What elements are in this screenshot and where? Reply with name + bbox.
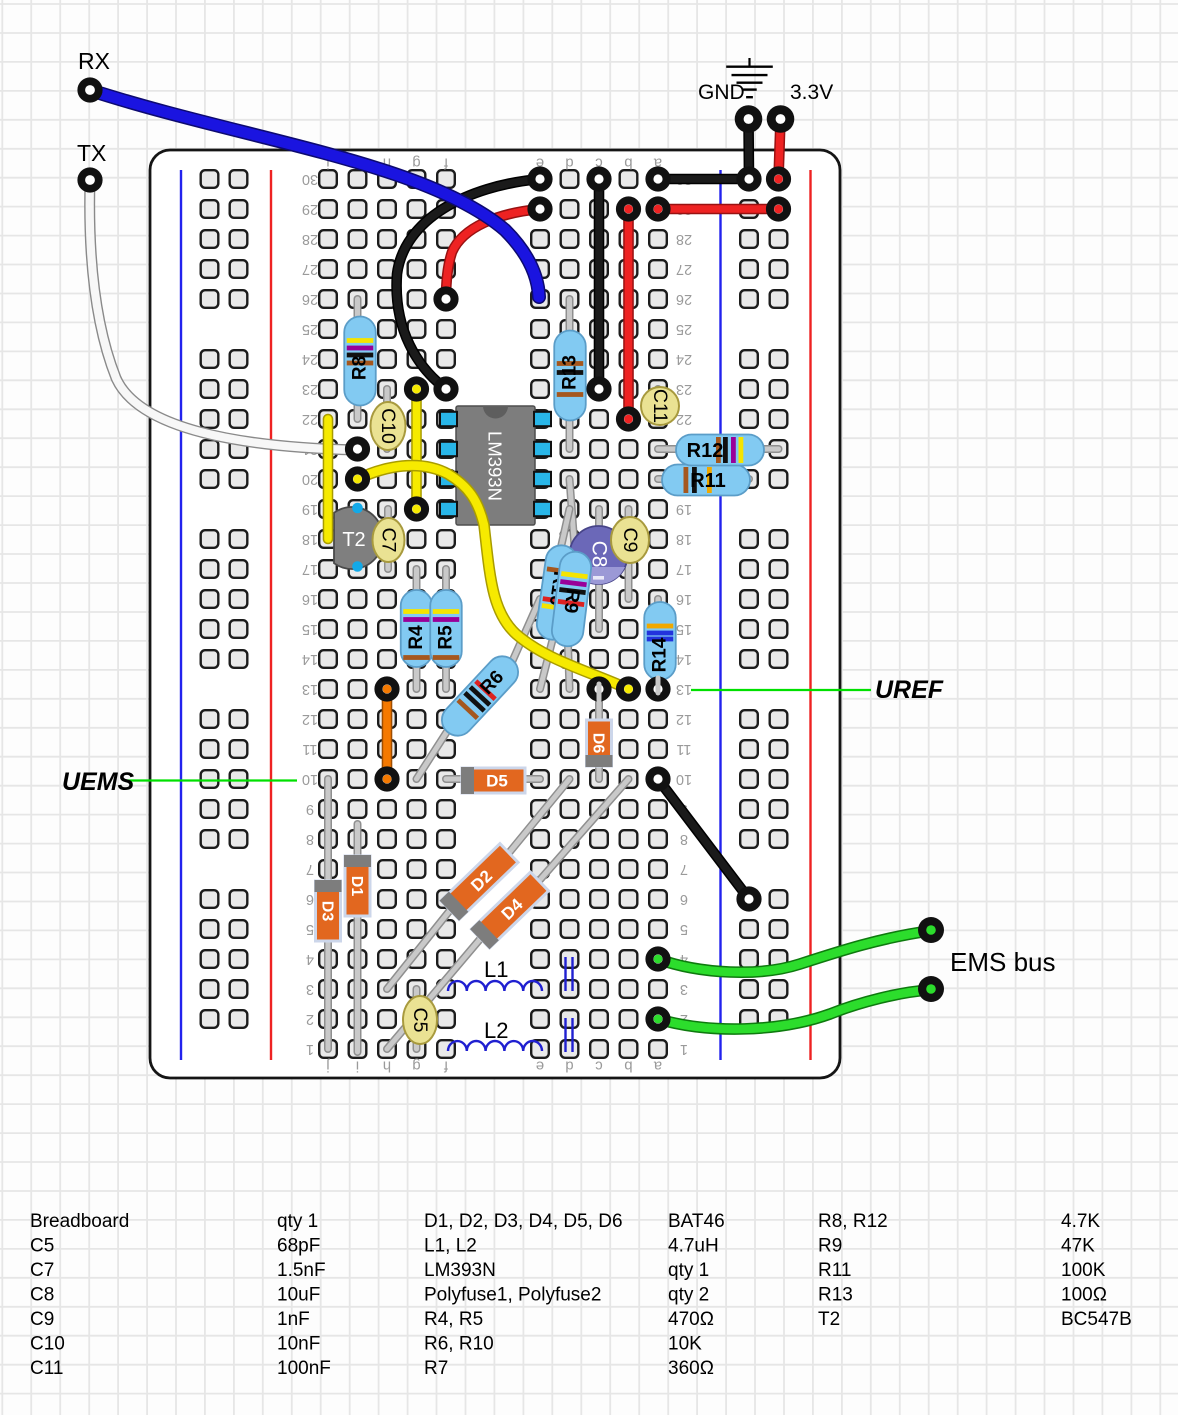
- svg-text:22: 22: [302, 411, 318, 427]
- svg-text:R11: R11: [690, 470, 726, 492]
- svg-text:L1: L1: [484, 957, 508, 982]
- svg-text:L1, L2: L1, L2: [424, 1236, 477, 1257]
- svg-text:26: 26: [302, 291, 318, 307]
- svg-text:R6, R10: R6, R10: [424, 1334, 494, 1355]
- svg-text:13: 13: [676, 681, 692, 697]
- svg-text:10: 10: [302, 771, 318, 787]
- svg-text:D6: D6: [590, 733, 607, 754]
- svg-text:10uF: 10uF: [277, 1285, 320, 1306]
- svg-text:3: 3: [306, 981, 314, 997]
- svg-text:360Ω: 360Ω: [668, 1358, 714, 1379]
- svg-text:68pF: 68pF: [277, 1236, 320, 1257]
- svg-text:12: 12: [676, 711, 692, 727]
- svg-text:100K: 100K: [1061, 1260, 1106, 1281]
- svg-text:7: 7: [680, 861, 688, 877]
- svg-text:g: g: [412, 155, 420, 172]
- svg-text:23: 23: [676, 381, 692, 397]
- svg-text:10: 10: [676, 771, 692, 787]
- svg-text:C5: C5: [30, 1236, 54, 1257]
- svg-text:C7: C7: [30, 1260, 54, 1281]
- svg-text:D1: D1: [348, 876, 365, 897]
- svg-text:15: 15: [676, 621, 692, 637]
- svg-text:BC547B: BC547B: [1061, 1309, 1132, 1330]
- svg-text:LM393N: LM393N: [485, 431, 506, 501]
- svg-text:17: 17: [302, 561, 318, 577]
- svg-text:R14: R14: [650, 637, 671, 672]
- svg-text:23: 23: [302, 381, 318, 397]
- svg-text:C11: C11: [649, 389, 671, 423]
- svg-text:5: 5: [306, 921, 314, 937]
- svg-text:10nF: 10nF: [277, 1334, 320, 1355]
- svg-text:9: 9: [306, 801, 314, 817]
- svg-text:100Ω: 100Ω: [1061, 1285, 1107, 1306]
- svg-text:i: i: [356, 1058, 359, 1075]
- svg-text:qty 1: qty 1: [277, 1211, 318, 1232]
- svg-text:2: 2: [306, 1011, 314, 1027]
- svg-text:R13: R13: [560, 355, 581, 390]
- svg-text:8: 8: [306, 831, 314, 847]
- svg-text:15: 15: [302, 621, 318, 637]
- svg-text:20: 20: [302, 471, 318, 487]
- svg-text:29: 29: [302, 201, 318, 217]
- svg-text:18: 18: [676, 531, 692, 547]
- svg-text:BAT46: BAT46: [668, 1211, 725, 1232]
- svg-text:R9: R9: [559, 588, 583, 615]
- svg-text:a: a: [653, 1058, 662, 1075]
- svg-text:UEMS: UEMS: [62, 768, 135, 796]
- svg-text:RX: RX: [78, 48, 110, 74]
- svg-text:qty 1: qty 1: [668, 1260, 709, 1281]
- svg-text:28: 28: [302, 231, 318, 247]
- svg-text:C10: C10: [30, 1334, 65, 1355]
- svg-text:30: 30: [302, 171, 318, 187]
- svg-text:R9: R9: [818, 1236, 842, 1257]
- svg-text:e: e: [536, 1058, 544, 1075]
- svg-text:1: 1: [306, 1041, 314, 1057]
- svg-text:3.3V: 3.3V: [790, 81, 833, 104]
- svg-text:C7: C7: [378, 528, 400, 553]
- svg-text:R12: R12: [687, 440, 724, 462]
- svg-text:27: 27: [676, 261, 692, 277]
- svg-text:h: h: [383, 1058, 391, 1075]
- svg-text:26: 26: [676, 291, 692, 307]
- svg-text:4.7K: 4.7K: [1061, 1211, 1100, 1232]
- svg-text:24: 24: [676, 351, 692, 367]
- svg-text:T2: T2: [818, 1309, 840, 1330]
- svg-text:D3: D3: [319, 901, 336, 922]
- svg-text:470Ω: 470Ω: [668, 1309, 714, 1330]
- svg-text:25: 25: [676, 321, 692, 337]
- svg-text:R4: R4: [406, 625, 427, 650]
- svg-text:27: 27: [302, 261, 318, 277]
- svg-text:13: 13: [302, 681, 318, 697]
- svg-text:6: 6: [680, 891, 688, 907]
- svg-text:19: 19: [302, 501, 318, 517]
- svg-text:28: 28: [676, 231, 692, 247]
- svg-text:b: b: [624, 155, 632, 172]
- svg-text:47K: 47K: [1061, 1236, 1095, 1257]
- svg-text:L2: L2: [484, 1018, 508, 1043]
- svg-text:25: 25: [302, 321, 318, 337]
- svg-text:19: 19: [676, 501, 692, 517]
- svg-text:6: 6: [306, 891, 314, 907]
- svg-text:4.7uH: 4.7uH: [668, 1236, 719, 1257]
- svg-text:j: j: [326, 1058, 330, 1075]
- svg-text:g: g: [412, 1058, 420, 1075]
- svg-text:16: 16: [302, 591, 318, 607]
- svg-text:10K: 10K: [668, 1334, 702, 1355]
- svg-text:c: c: [595, 1058, 603, 1075]
- svg-text:1nF: 1nF: [277, 1309, 310, 1330]
- svg-text:R8: R8: [350, 356, 371, 380]
- svg-text:Polyfuse1, Polyfuse2: Polyfuse1, Polyfuse2: [424, 1285, 601, 1306]
- svg-text:R11: R11: [818, 1260, 851, 1281]
- svg-text:100nF: 100nF: [277, 1358, 331, 1379]
- svg-text:16: 16: [676, 591, 692, 607]
- svg-text:R7: R7: [424, 1358, 448, 1379]
- svg-text:C11: C11: [30, 1358, 63, 1379]
- svg-text:EMS bus: EMS bus: [950, 947, 1056, 977]
- svg-text:C9: C9: [30, 1309, 54, 1330]
- svg-text:C8: C8: [30, 1285, 54, 1306]
- svg-text:1.5nF: 1.5nF: [277, 1260, 326, 1281]
- svg-text:LM393N: LM393N: [424, 1260, 496, 1281]
- svg-text:17: 17: [676, 561, 692, 577]
- svg-text:C10: C10: [377, 408, 399, 444]
- svg-text:R13: R13: [818, 1285, 853, 1306]
- svg-text:Breadboard: Breadboard: [30, 1211, 129, 1232]
- svg-text:14: 14: [302, 651, 318, 667]
- svg-text:24: 24: [302, 351, 318, 367]
- svg-text:11: 11: [676, 741, 691, 757]
- svg-text:D5: D5: [486, 772, 508, 791]
- svg-text:d: d: [565, 155, 573, 172]
- svg-text:b: b: [624, 1058, 632, 1075]
- svg-text:R5: R5: [436, 625, 457, 650]
- svg-text:11: 11: [302, 741, 317, 757]
- svg-text:TX: TX: [77, 140, 106, 166]
- svg-text:3: 3: [680, 981, 688, 997]
- svg-text:UREF: UREF: [875, 676, 944, 704]
- svg-text:d: d: [565, 1058, 573, 1075]
- svg-text:18: 18: [302, 531, 318, 547]
- svg-text:D1, D2, D3, D4, D5, D6: D1, D2, D3, D4, D5, D6: [424, 1211, 623, 1232]
- svg-text:GND: GND: [698, 81, 745, 104]
- svg-text:12: 12: [302, 711, 318, 727]
- svg-text:5: 5: [680, 921, 688, 937]
- svg-text:qty 2: qty 2: [668, 1285, 709, 1306]
- svg-text:R4, R5: R4, R5: [424, 1309, 483, 1330]
- svg-text:C5: C5: [409, 1008, 431, 1033]
- svg-text:1: 1: [680, 1041, 688, 1057]
- svg-text:7: 7: [306, 861, 314, 877]
- svg-text:8: 8: [680, 831, 688, 847]
- svg-text:14: 14: [676, 651, 692, 667]
- svg-text:T2: T2: [342, 529, 365, 551]
- svg-text:C9: C9: [619, 528, 641, 553]
- svg-text:R8, R12: R8, R12: [818, 1211, 888, 1232]
- svg-text:4: 4: [306, 951, 314, 967]
